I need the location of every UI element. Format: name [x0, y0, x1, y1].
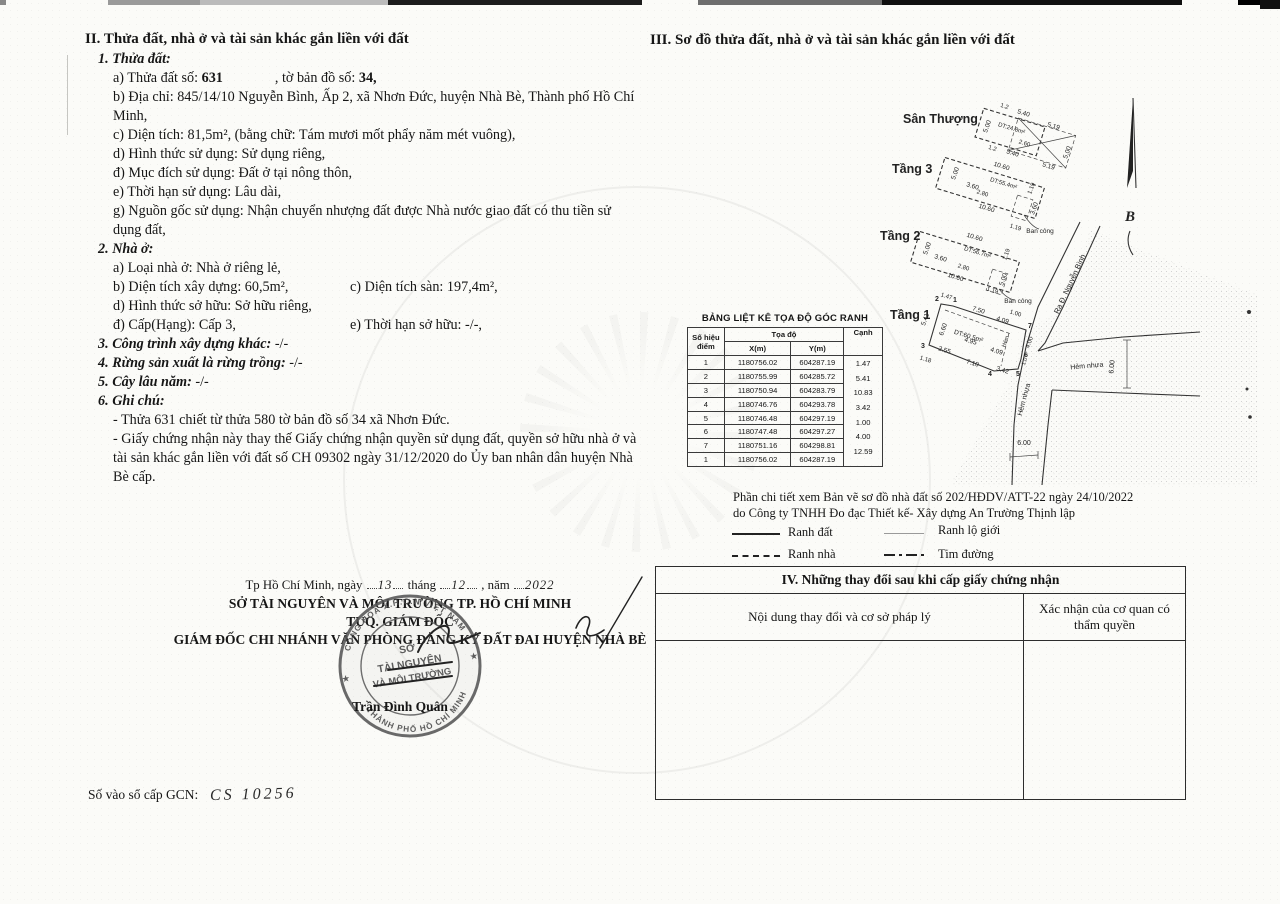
col-header-coord: Tọa độ: [724, 328, 843, 342]
plan-dim-label: 2.80: [976, 189, 990, 198]
x-cell: 1180746.48: [724, 411, 791, 425]
x-cell: 1180756.02: [724, 356, 791, 370]
y-cell: 604287.19: [791, 453, 844, 467]
dot-leader: [514, 578, 524, 589]
parcel-line-e: e) Thời hạn sử dụng: Lâu dài,: [85, 183, 642, 202]
coordinate-table-block: BẢNG LIỆT KÊ TỌA ĐỘ GÓC RANH Số hiệu điể…: [687, 313, 883, 467]
item5: 5. Cây lâu năm: -/-: [85, 373, 642, 392]
house-line-dde: đ) Cấp(Hạng): Cấp 3, e) Thời hạn sở hữu:…: [85, 316, 642, 335]
house-line-d: d) Hình thức sở hữu: Sở hữu riêng,: [85, 297, 642, 316]
x-cell: 1180756.02: [724, 453, 791, 467]
map-sheet-value: 34,: [359, 70, 377, 86]
item5-label: 5. Cây lâu năm:: [98, 374, 192, 390]
house-line-a: a) Loại nhà ở: Nhà ở riêng lẻ,: [85, 259, 642, 278]
point-cell: 3: [688, 383, 725, 397]
item3-label: 3. Công trình xây dựng khác:: [98, 336, 271, 352]
point-cell: 1: [688, 453, 725, 467]
legend-line-ranh-dat: [732, 533, 780, 535]
house-line-e: e) Thời hạn sở hữu: -/-,: [350, 316, 482, 335]
y-cell: 604283.79: [791, 383, 844, 397]
plan-dim-label: 5.00: [950, 166, 961, 181]
scan-artifact-top: [0, 0, 1280, 5]
edge-value: 10.83: [844, 388, 882, 397]
house-line-b: b) Diện tích xây dựng: 60,5m²,: [113, 278, 350, 297]
plan-dim-label: Hẻm: [1001, 335, 1011, 348]
section-iv-title: IV. Những thay đổi sau khi cấp giấy chứn…: [656, 567, 1185, 594]
plan-dim-label: 1.2: [999, 103, 1009, 111]
item5-value: -/-: [195, 374, 208, 390]
point-cell: 1: [688, 356, 725, 370]
edge-value: 1.00: [844, 418, 882, 427]
stamp-center-line1: SỞ: [398, 641, 416, 657]
plan-dim-label: 1.19: [986, 286, 1000, 295]
x-cell: 1180750.94: [724, 383, 791, 397]
plan-dim-label: 10.60: [978, 203, 996, 215]
x-cell: 1180751.16: [724, 439, 791, 453]
col-header-edge: Cạnh: [844, 328, 883, 356]
point-cell: 7: [688, 439, 725, 453]
parcel-line-c: c) Diện tích: 81,5m², (bằng chữ: Tám mươ…: [85, 126, 642, 145]
item3: 3. Công trình xây dựng khác: -/-: [85, 335, 642, 354]
coordinate-table: Số hiệu điểm Tọa độ Cạnh X(m) Y(m) 11180…: [687, 327, 883, 467]
plan-dim-label: 3.60: [933, 253, 948, 264]
plan-dim-label: 10.60: [947, 272, 965, 284]
point-cell: 2: [688, 369, 725, 383]
legend-line-tim-duong: [884, 554, 928, 556]
legend-label-ranh-lo-gioi: Ranh lộ giới: [938, 523, 1000, 538]
parcel-line-g: g) Nguồn gốc sử dụng: Nhận chuyển nhượng…: [85, 202, 642, 240]
plan-dim-label: 1.00: [1009, 309, 1023, 318]
boundary-point-label: 5: [1016, 371, 1020, 378]
y-cell: 604293.78: [791, 397, 844, 411]
house-line-bc: b) Diện tích xây dựng: 60,5m², c) Diện t…: [85, 278, 642, 297]
edge-value: 5.41: [844, 374, 882, 383]
parcel-line-d: d) Hình thức sử dụng: Sử dụng riêng,: [85, 145, 642, 164]
item6-heading: 6. Ghi chú:: [85, 392, 642, 411]
section-ii-title: II. Thửa đất, nhà ở và tài sản khác gắn …: [85, 30, 642, 49]
plan-dim-label: Ban công: [1026, 228, 1054, 235]
plan-dim-label: 5.40: [1016, 108, 1031, 119]
plan-dim-label: 10.60: [993, 161, 1011, 173]
plan-dim-label: 2.80: [957, 263, 971, 272]
boundary-point-label: 3: [921, 343, 925, 350]
legend-label-tim-duong: Tim đường: [938, 547, 994, 562]
detail-note-line1: Phần chi tiết xem Bản vẽ sơ đồ nhà đất s…: [733, 489, 1213, 505]
boundary-point-label: 7: [1028, 323, 1032, 330]
plan-dim-label: 1.19: [1009, 223, 1023, 232]
plan-dim-label: B: [1124, 209, 1135, 225]
boundary-point-label: 1: [953, 297, 957, 304]
parcel-number-value: 631: [202, 70, 223, 86]
plan-dim-label: 5.00: [982, 119, 993, 134]
plan-dim-label: DT:55.4m²: [989, 177, 1017, 191]
col-header-content: Nội dung thay đổi và cơ sở pháp lý: [656, 594, 1024, 640]
road-texture: [950, 230, 1258, 485]
north-arrow-icon: [1127, 98, 1133, 188]
edge-value: 12.59: [844, 447, 882, 456]
content-cell-empty: [656, 641, 1024, 799]
point-cell: 4: [688, 397, 725, 411]
parcel-number-label: a) Thửa đất số:: [113, 70, 198, 86]
note-line-2: - Giấy chứng nhận này thay thế Giấy chứn…: [85, 430, 642, 487]
house-heading: 2. Nhà ở:: [85, 240, 642, 259]
plan-dim-label: DT:24.8m²: [997, 122, 1025, 136]
y-cell: 604297.27: [791, 425, 844, 439]
item4: 4. Rừng sản xuất là rừng trồng: -/-: [85, 354, 642, 373]
coordinate-table-title: BẢNG LIỆT KÊ TỌA ĐỘ GÓC RANH: [687, 313, 883, 324]
scan-artifact-corner: [1260, 0, 1280, 9]
legend-line-ranh-lo-gioi: [884, 533, 924, 534]
y-cell: 604287.19: [791, 356, 844, 370]
plan-dim-label: 5.19: [1041, 161, 1056, 172]
x-cell: 1180755.99: [724, 369, 791, 383]
edge-value: 4.00: [844, 432, 882, 441]
legend-line-ranh-nha: [732, 555, 780, 557]
serial-value: CS 10256: [209, 785, 296, 805]
col-header-confirm: Xác nhận của cơ quan có thẩm quyền: [1024, 594, 1185, 640]
signer-name: Trần Đình Quân: [250, 699, 550, 715]
plan-dim-label: 5.00: [922, 241, 933, 256]
item4-value: -/-: [289, 355, 302, 371]
section-iv-header: Nội dung thay đổi và cơ sở pháp lý Xác n…: [656, 594, 1185, 641]
plan-dim-label: 3.42: [995, 365, 1010, 376]
x-cell: 1180746.76: [724, 397, 791, 411]
scanned-certificate-page: II. Thửa đất, nhà ở và tài sản khác gắn …: [0, 0, 1280, 904]
plan-dim-label: 1.18: [919, 355, 933, 364]
point-cell: 6: [688, 425, 725, 439]
col-header-y: Y(m): [791, 342, 844, 356]
house-line-c: c) Diện tích sàn: 197,4m²,: [350, 278, 498, 297]
serial-label: Số vào sổ cấp GCN:: [88, 787, 198, 802]
section-iii-title: III. Sơ đồ thửa đất, nhà ở và tài sản kh…: [650, 32, 1230, 49]
item4-label: 4. Rừng sản xuất là rừng trồng:: [98, 355, 286, 371]
edge-cell: 1.475.4110.833.421.004.0012.59: [844, 356, 883, 467]
floor3-balcony: [1011, 195, 1033, 221]
plan-dim-label: 7.10: [965, 358, 980, 369]
floor-name-label: Sân Thượng: [903, 112, 978, 126]
plan-dim-label: DT:56.7m²: [963, 246, 991, 260]
plan-dim-label: 2.55: [937, 345, 952, 356]
boundary-point-label: 4: [988, 371, 992, 378]
plan-dim-label: 4.09: [989, 346, 1004, 357]
edge-value: 1.47: [844, 359, 882, 368]
parcel-line-a: a) Thửa đất số: 631, tờ bản đồ số: 34,: [85, 69, 642, 88]
official-stamp: CỘNG HÒA X.H.C.N VIỆT NAM THÀNH PHỐ HỒ C…: [330, 588, 490, 748]
boundary-point-label: 2: [935, 296, 939, 303]
point-cell: 5: [688, 411, 725, 425]
y-cell: 604298.81: [791, 439, 844, 453]
plan-dim-label: 1.2: [987, 145, 997, 153]
legend-label-ranh-dat: Ranh đất: [788, 525, 833, 540]
plan-dim-label: 6.60: [938, 322, 949, 337]
plan-dim-label: 5.00: [998, 272, 1009, 287]
detail-note: Phần chi tiết xem Bản vẽ sơ đồ nhà đất s…: [733, 489, 1213, 521]
plan-dim-label: 4.09: [995, 315, 1010, 326]
y-cell: 604297.19: [791, 411, 844, 425]
section-ii: II. Thửa đất, nhà ở và tài sản khác gắn …: [85, 30, 642, 487]
floor-name-label: Tầng 3: [892, 162, 932, 176]
item3-value: -/-: [275, 336, 288, 352]
date-year: 2022: [525, 578, 555, 592]
col-header-x: X(m): [724, 342, 791, 356]
map-sheet-label: , tờ bản đồ số:: [275, 70, 355, 86]
plan-dim-label: 1.47: [940, 292, 954, 301]
x-cell: 1180747.48: [724, 425, 791, 439]
plan-dim-label: 6.00: [1017, 440, 1031, 447]
plan-dim-label: 10.60: [966, 232, 984, 244]
plan-dim-label: 6.00: [1108, 360, 1116, 374]
coord-row: 11180756.02604287.191.475.4110.833.421.0…: [688, 356, 883, 370]
section-iv-body: [656, 641, 1185, 799]
confirm-cell-empty: [1024, 641, 1185, 799]
col-header-point: Số hiệu điểm: [688, 328, 725, 356]
section-iv-table: IV. Những thay đổi sau khi cấp giấy chứn…: [655, 566, 1186, 800]
edge-value: 3.42: [844, 403, 882, 412]
floor-name-label: Tầng 2: [880, 229, 920, 243]
legend-label-ranh-nha: Ranh nhà: [788, 547, 836, 562]
plan-dim-label: 2.60: [1018, 139, 1032, 148]
north-arrow-shaft: [1133, 98, 1136, 188]
parcel-line-b: b) Địa chỉ: 845/14/10 Nguyễn Bình, Ấp 2,…: [85, 88, 642, 126]
note-line-1: - Thửa 631 chiết từ thửa 580 tờ bản đồ s…: [85, 411, 642, 430]
plan-dim-label: Ban công: [1004, 298, 1032, 305]
y-cell: 604285.72: [791, 369, 844, 383]
parcel-heading: 1. Thửa đất:: [85, 50, 642, 69]
parcel-line-dd: đ) Mục đích sử dụng: Đất ở tại nông thôn…: [85, 164, 642, 183]
detail-note-line2: do Công ty TNHH Đo đạc Thiết kế- Xây dựn…: [733, 505, 1213, 521]
plan-dim-label: 5.19: [1046, 121, 1061, 132]
plan-dim-label: 5.00: [1062, 145, 1073, 160]
scan-fold-line: [67, 55, 68, 135]
house-line-dd: đ) Cấp(Hạng): Cấp 3,: [113, 316, 350, 335]
serial-line: Số vào sổ cấp GCN: CS 10256: [88, 786, 296, 804]
